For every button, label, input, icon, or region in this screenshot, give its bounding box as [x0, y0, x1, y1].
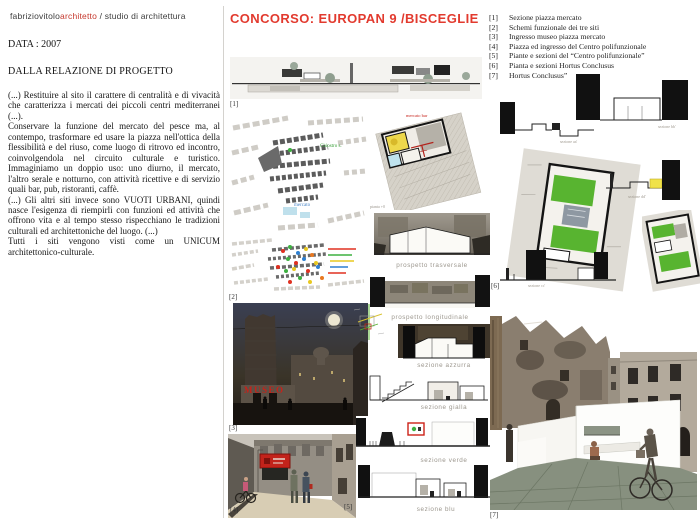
paragraph: (...) Gli altri siti invece sono VUOTI U… — [8, 195, 220, 237]
sezione-bb: sezione bb' — [574, 68, 699, 130]
verde-drawing — [356, 416, 490, 456]
figure-label-6: [6] — [491, 282, 499, 290]
hortus-photomontage — [490, 310, 697, 510]
street-render-image — [228, 434, 356, 518]
sezione-cc: sezione cc' — [498, 244, 620, 288]
site-section-drawing — [230, 57, 482, 99]
blue-room — [387, 153, 402, 168]
caption-dd: sezione dd' — [628, 194, 646, 199]
caption-longitudinale: prospetto longitudinale — [370, 314, 490, 321]
relazione-text: (...) Restituire al sito il carattere di… — [8, 90, 220, 257]
figure-label-3: [3] — [229, 424, 237, 432]
relazione-heading: DALLA RELAZIONE DI PROGETTO — [8, 66, 173, 77]
museo-sign-text: MUSEO — [244, 385, 285, 395]
paragraph: Conservare la funzione del mercato del p… — [8, 121, 220, 194]
functional-scheme-map — [228, 237, 368, 294]
city-map-drawing: Chiostro s. mercato — [228, 112, 368, 236]
brand-suffix: / studio di architettura — [97, 11, 186, 21]
paragraph: (...) Restituire al sito il carattere di… — [8, 90, 220, 121]
tree-icon — [290, 62, 298, 70]
street-render — [228, 434, 356, 518]
legend-item: [2]Schemi funzionale dei tre siti — [489, 23, 646, 33]
prospetto-longitudinale — [370, 273, 490, 313]
figure-label-7: [7] — [490, 511, 498, 519]
page-title: CONCORSO: EUROPAN 9 /BISCEGLIE — [230, 11, 479, 26]
bb-drawing: sezione bb' — [574, 68, 699, 130]
paragraph: Tutti i siti vengono visti come un UNICU… — [8, 236, 220, 257]
brand-name: fabriziovitolo — [10, 11, 60, 21]
legend-item: [1]Sezione piazza mercato — [489, 13, 646, 23]
cc-drawing: sezione cc' — [498, 244, 620, 288]
sezione-azzurra — [398, 324, 490, 360]
map-label-green: Chiostro s. — [320, 144, 342, 149]
hortus-plan-2-drawing — [642, 210, 700, 292]
sezione-dd: sezione dd' — [604, 152, 699, 204]
map-label-blue: mercato — [294, 203, 311, 208]
site-section-strip — [230, 57, 482, 99]
tree-icon — [325, 73, 335, 83]
legend-item: [5]Piante e sezioni del “Centro polifunz… — [489, 51, 646, 61]
sezione-blu — [358, 465, 490, 505]
axon-diagram-drawing — [352, 300, 386, 344]
caption-blu: sezione blu — [390, 506, 482, 513]
project-date: DATA : 2007 — [8, 39, 61, 50]
studio-brand: fabriziovitoloarchitetto / studio di arc… — [10, 11, 186, 21]
caption-verde: sezione verde — [398, 457, 490, 464]
market-plan-drawing: mercato bar pianta +0 — [368, 110, 490, 210]
figure-label-2: [2] — [229, 293, 237, 301]
caption-trasversale: prospetto trasversale — [374, 262, 490, 269]
legend-item: [3]Ingresso museo piazza mercato — [489, 32, 646, 42]
museo-night-render: MUSEO — [233, 303, 368, 425]
photomontage-image — [490, 310, 697, 510]
moon-icon — [328, 314, 340, 326]
trasversale-photo — [374, 213, 490, 259]
azzurra-drawing — [398, 324, 490, 360]
column-divider — [223, 6, 224, 518]
figure-label-5: [5] — [344, 503, 352, 511]
caption-gialla: sezione gialla — [398, 404, 490, 411]
market-plan: mercato bar pianta +0 — [368, 110, 490, 210]
hortus-plan-2 — [642, 210, 700, 292]
blu-drawing — [358, 465, 490, 505]
sezione-verde — [356, 416, 490, 456]
portfolio-page: fabriziovitoloarchitetto / studio di arc… — [0, 0, 700, 525]
legend-item: [4]Piazza ed ingresso del Centro polifun… — [489, 42, 646, 52]
axon-diagram — [352, 300, 386, 344]
brand-accent: architetto — [60, 11, 97, 21]
night-render-image: MUSEO — [233, 303, 368, 425]
figure-label-1: [1] — [230, 100, 238, 108]
caption-cc: sezione cc' — [528, 283, 546, 288]
caption-bb: sezione bb' — [658, 124, 676, 129]
prospetto-trasversale — [374, 213, 490, 259]
sezione-gialla — [368, 372, 490, 404]
dd-drawing: sezione dd' — [604, 152, 699, 204]
scheme-map-drawing — [228, 237, 368, 294]
longitudinale-photo — [370, 273, 490, 313]
figure-ground-map: Chiostro s. mercato — [228, 112, 368, 236]
mercato-bar-label: mercato bar — [406, 113, 428, 118]
figure-label-4: [4] — [230, 506, 238, 514]
yellow-marker — [650, 179, 662, 188]
tree-icon — [462, 72, 470, 80]
caption-azzurra: sezione azzurra — [398, 362, 490, 369]
gialla-drawing — [368, 372, 490, 404]
pianta-label: pianta +0 — [370, 204, 385, 209]
